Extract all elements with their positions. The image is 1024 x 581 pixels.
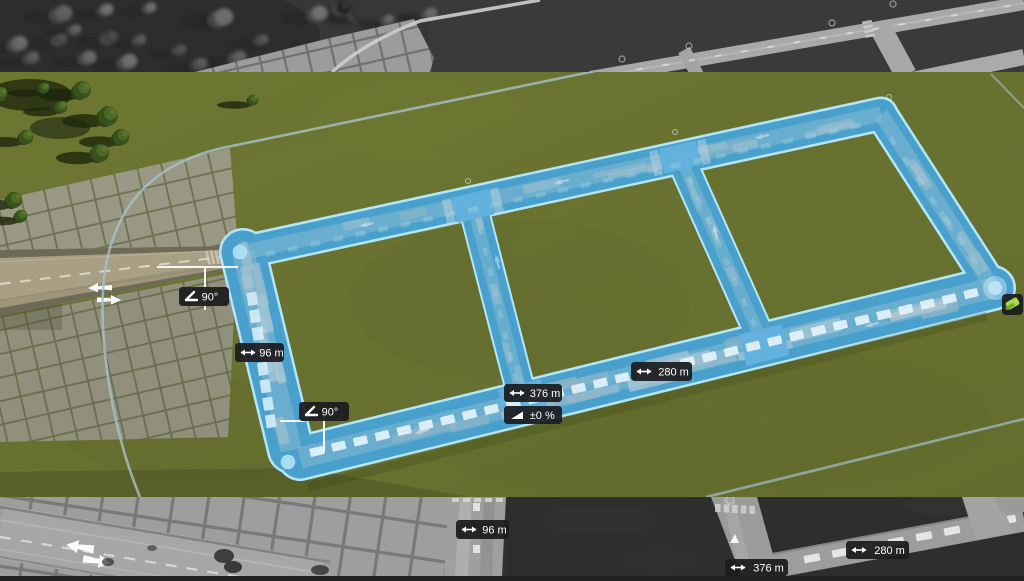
svg-text:280 m: 280 m <box>874 545 905 557</box>
svg-text:280 m: 280 m <box>658 366 689 378</box>
svg-text:90°: 90° <box>202 291 219 303</box>
svg-text:96 m: 96 m <box>259 347 283 359</box>
svg-text:376 m: 376 m <box>530 388 561 400</box>
svg-text:96 m: 96 m <box>482 524 506 536</box>
svg-text:±0 %: ±0 % <box>530 410 555 422</box>
svg-text:376 m: 376 m <box>753 562 784 574</box>
svg-text:90°: 90° <box>322 406 339 418</box>
